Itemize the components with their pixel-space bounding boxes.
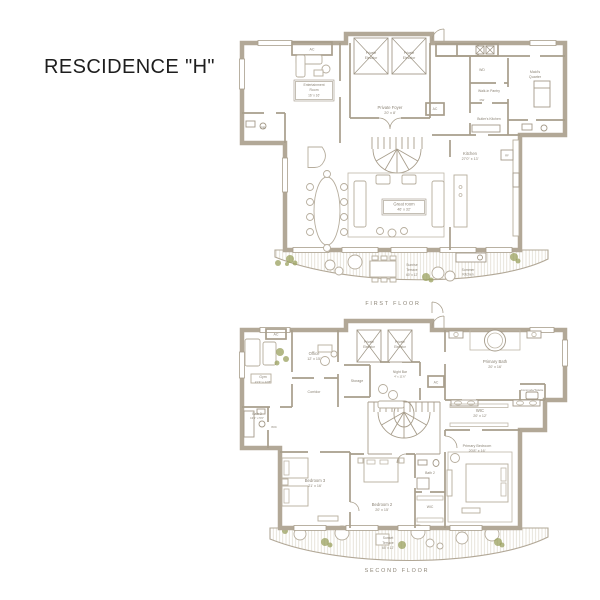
- room-label: Bedroom 2: [372, 502, 393, 507]
- toilet: [526, 392, 538, 399]
- staircase: [372, 137, 422, 173]
- room-label: 13'1" x 5'6": [250, 416, 264, 420]
- room-label: 60' x 12': [406, 273, 418, 277]
- dining-table: [314, 177, 340, 245]
- piano: [308, 147, 325, 168]
- room-label: Terrace: [382, 541, 393, 545]
- second-floor-caption: SECOND FLOOR: [365, 568, 430, 574]
- room-label: WD: [479, 68, 485, 72]
- room-label: Butler's Kitchen: [477, 117, 501, 121]
- room-label: Elevator: [394, 345, 407, 349]
- room-label: DW: [480, 98, 485, 102]
- maids-bed: [534, 81, 550, 107]
- room-label: Bedroom 3: [305, 478, 326, 483]
- room-label: Private Foyer: [378, 105, 404, 110]
- room-label: WIC: [271, 425, 278, 429]
- room-label: Private: [364, 340, 374, 344]
- room-label: Office: [309, 351, 321, 356]
- room-label: WIC: [427, 505, 434, 509]
- room-label: Bath 2: [425, 471, 435, 475]
- first-floor-plan: Entertainment Room 16' x 16' AC PR Priva…: [230, 25, 575, 315]
- primary-bath-fixtures: [449, 330, 541, 427]
- room-label: AC: [274, 333, 279, 337]
- room-label: Summer: [462, 268, 476, 272]
- room-labels: AC Gym 21'3" x 12'8" Office 12' x 15' Co…: [250, 333, 544, 551]
- room-label: 12' x 15': [307, 357, 321, 361]
- room-label: Elevator: [363, 345, 376, 349]
- room-label: Sunset: [383, 536, 394, 540]
- room-label: 20' x 15': [375, 508, 389, 512]
- room-label: Walk-in Pantry: [478, 89, 500, 93]
- room-label: Elevator: [403, 56, 416, 60]
- room-label: 27'0" x 13': [462, 157, 479, 161]
- room-label: Primary Bedroom: [463, 444, 492, 448]
- bed: [364, 458, 398, 482]
- room-label: AC: [310, 48, 315, 52]
- room-label: 4' x 11'6": [394, 375, 406, 379]
- second-floor-plan: AC Gym 21'3" x 12'8" Office 12' x 15' Co…: [230, 312, 575, 584]
- room-label: Great room: [393, 202, 415, 207]
- room-label: AC: [433, 107, 438, 111]
- room-label: Night Bar: [393, 370, 408, 374]
- room-label: Kitchen: [462, 273, 473, 277]
- room-label: WIC: [476, 408, 484, 413]
- room-label: AC: [434, 381, 439, 385]
- room-label: Private: [395, 340, 405, 344]
- room-label: 20' x 8': [384, 111, 396, 115]
- room-label: Maid's: [530, 70, 540, 74]
- room-label: Private: [404, 51, 415, 55]
- room-label: 20' x 16': [488, 365, 502, 369]
- first-floor-caption: FIRST FLOOR: [365, 301, 420, 307]
- room-label: Terrace: [406, 268, 417, 272]
- room-label: 20'8" x 16': [469, 449, 486, 453]
- staircase: [368, 401, 440, 454]
- room-label: Sunrise: [406, 263, 418, 267]
- room-label: Corridor: [308, 390, 322, 394]
- room-label: Room: [309, 88, 318, 92]
- room-label: Commode/Toilette: [521, 388, 544, 392]
- room-label: Quarter: [529, 75, 542, 79]
- room-label: Primary Bath: [483, 359, 508, 364]
- room-label: Storage: [351, 379, 364, 383]
- room-label: 20' x 12': [473, 414, 487, 418]
- floor-plan-sheet: RESCIDENCE "H": [0, 0, 600, 600]
- room-labels: Entertainment Room 16' x 16' AC PR Priva…: [261, 48, 542, 278]
- kitchen-island: [454, 175, 467, 227]
- room-label: 16' x 16': [308, 94, 320, 98]
- entertainment-furniture: [296, 55, 330, 77]
- room-label: Gym: [259, 375, 267, 379]
- room-label: Kitchen: [463, 151, 478, 156]
- room-label: RF: [505, 154, 509, 158]
- room-label: Private: [366, 51, 377, 55]
- room-label: Elevator: [365, 56, 378, 60]
- room-label: Entertainment: [303, 83, 324, 87]
- residence-title: RESCIDENCE "H": [44, 56, 215, 79]
- room-label: 21'3" x 12'8": [255, 380, 271, 384]
- room-label: 65' x 12': [382, 546, 394, 550]
- room-label: PR: [261, 126, 266, 130]
- room-label: 46' x 32': [397, 208, 411, 212]
- room-label: 21' x 16': [308, 484, 322, 488]
